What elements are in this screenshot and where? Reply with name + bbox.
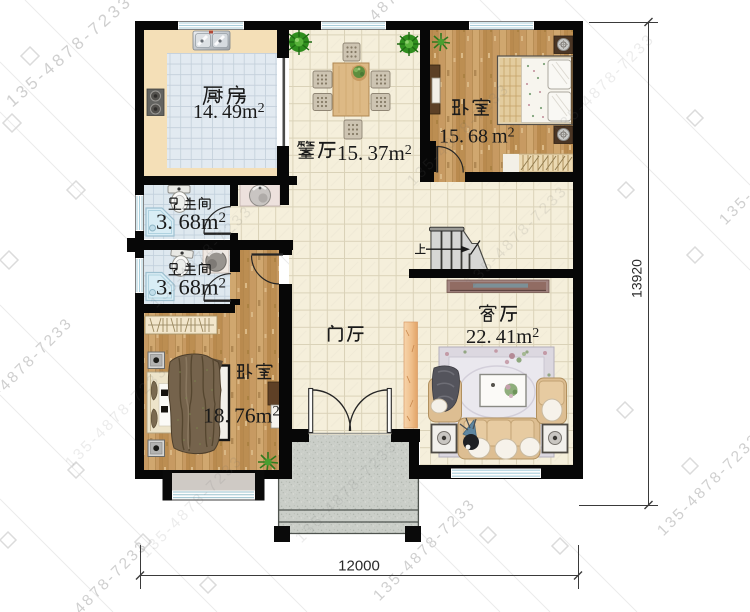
svg-text:135-4878-7233: 135-4878-7233 [716,119,750,228]
svg-text:14. 49m2: 14. 49m2 [193,101,265,123]
svg-text:18. 76m2: 18. 76m2 [203,404,280,428]
svg-text:135-4878-7233: 135-4878-7233 [42,537,151,612]
svg-text:13920: 13920 [629,259,645,298]
svg-text:12000: 12000 [338,558,380,575]
svg-text:135-4878-7233: 135-4878-7233 [654,430,750,539]
svg-text:22. 41m2: 22. 41m2 [466,326,539,348]
svg-text:15. 37m2: 15. 37m2 [337,141,412,165]
